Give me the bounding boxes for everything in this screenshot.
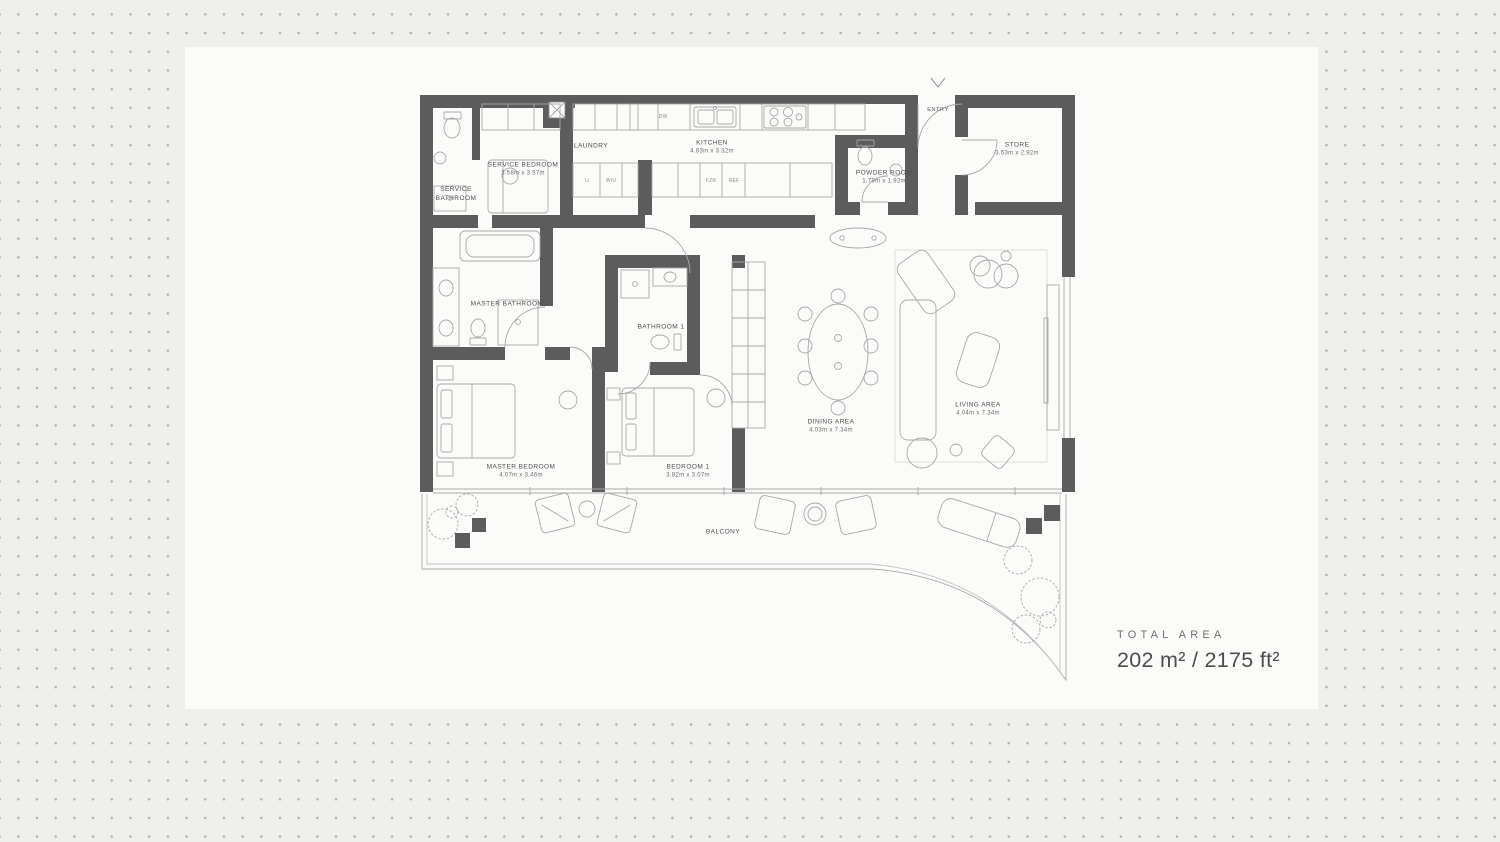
dining-set: [798, 289, 878, 415]
bed-service: [488, 160, 548, 213]
bedroom1-furniture: [607, 388, 725, 464]
walls: [420, 95, 1075, 492]
fixtures-and-furniture: [422, 78, 1070, 680]
console-table: [830, 228, 886, 248]
balcony-glass-wall: [433, 487, 1062, 495]
kitchen-counter-lower: [652, 163, 832, 197]
total-area-value: 202 m² / 2175 ft²: [1117, 648, 1280, 673]
floorplan-drawing: [0, 0, 1500, 842]
balcony-trees-right: [1004, 546, 1059, 643]
sink-icon: [694, 106, 736, 127]
bathroom1-fixtures: [618, 268, 732, 407]
balcony-sofa-set: [754, 495, 877, 536]
store-door: [962, 140, 997, 175]
service-bathroom-fixtures: [434, 112, 466, 211]
laundry-cabinets: [573, 104, 638, 197]
balcony-planters-left: [428, 494, 478, 539]
page-background: { "total_area": { "label": "TOTAL AREA",…: [0, 0, 1500, 842]
balcony-boundary: [422, 494, 1066, 680]
powder-room-fixtures: [857, 140, 902, 202]
balcony-lounge-chairs: [534, 492, 637, 533]
total-area-label: TOTAL AREA: [1117, 629, 1280, 641]
total-area-block: TOTAL AREA 202 m² / 2175 ft²: [1117, 629, 1280, 673]
master-bedroom-furniture: [437, 366, 577, 476]
wardrobe-bedroom1: [732, 262, 765, 428]
balcony-daybed: [935, 496, 1022, 550]
kitchen-counter-top: [630, 104, 865, 130]
hob-icon: [764, 106, 806, 128]
window-right: [1064, 277, 1070, 438]
living-furniture: [894, 247, 1059, 470]
